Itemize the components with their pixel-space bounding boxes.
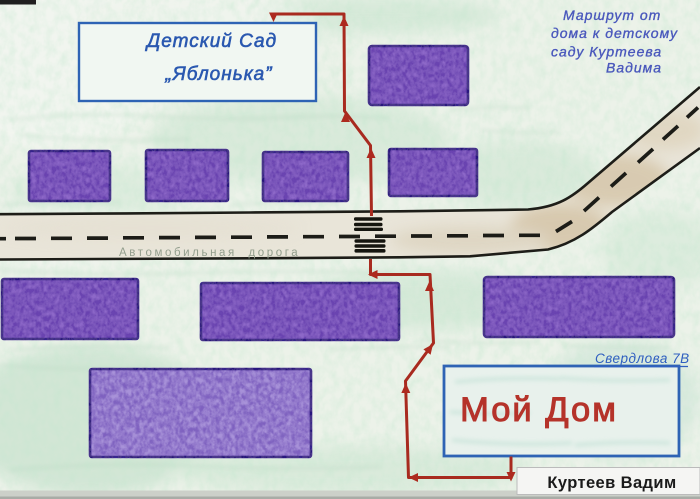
- svg-text:Мой Дом: Мой Дом: [460, 391, 618, 429]
- svg-text:Свердлова 7В: Свердлова 7В: [595, 351, 690, 366]
- svg-text:Детский Сад: Детский Сад: [145, 31, 277, 52]
- svg-text:„Яблонька”: „Яблонька”: [164, 64, 273, 85]
- svg-text:Вадима: Вадима: [606, 60, 662, 76]
- svg-text:Маршрут от: Маршрут от: [563, 7, 661, 23]
- svg-text:Автомобильная дорога: Автомобильная дорога: [119, 247, 300, 259]
- svg-text:саду Куртеева: саду Куртеева: [551, 44, 662, 60]
- svg-text:дома к детскому: дома к детскому: [551, 25, 678, 41]
- svg-text:Куртеев Вадим: Куртеев Вадим: [547, 474, 676, 492]
